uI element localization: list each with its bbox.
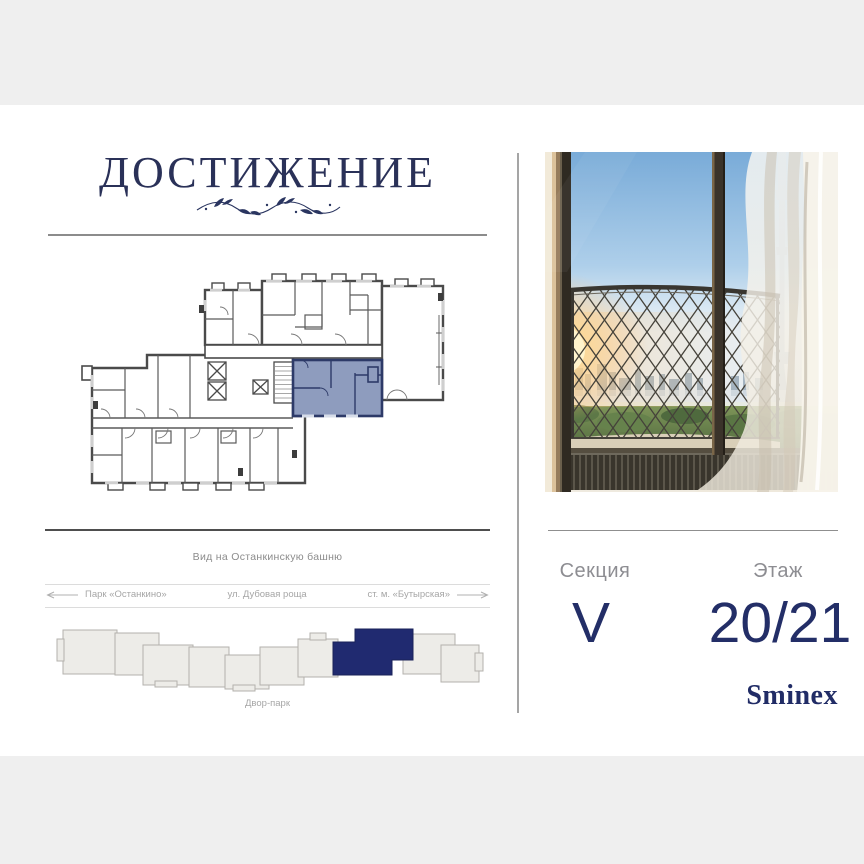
street-right-group: ст. м. «Бутырская» (368, 589, 491, 600)
center-mullion (712, 152, 725, 455)
floor-label: Этаж (718, 560, 838, 583)
flourish-ornament-icon (192, 196, 344, 220)
divider-street-top (45, 584, 490, 585)
divider-under-logo (48, 234, 487, 236)
site-plan-highlight (333, 629, 413, 675)
listing-card: ДОСТИЖЕНИЕ (0, 0, 864, 864)
street-label-center: ул. Дубовая роща (227, 589, 306, 600)
arrow-right-icon (456, 591, 490, 599)
brand-logo: ДОСТИЖЕНИЕ (45, 147, 490, 198)
floor-plan-highlighted-unit (293, 360, 382, 416)
floor-value: 20/21 (695, 594, 864, 654)
sminex-logo: Sminex (690, 680, 838, 712)
arrow-left-icon (45, 591, 79, 599)
view-caption: Вид на Останкинскую башню (45, 551, 490, 563)
site-plan-blocks (57, 630, 483, 691)
divider-street-bottom (45, 607, 490, 608)
street-row: Парк «Останкино» ул. Дубовая роща ст. м.… (45, 589, 490, 600)
floor-plan (50, 255, 490, 525)
street-label-park: Парк «Останкино» (85, 589, 167, 600)
divider-above-caption (45, 529, 490, 531)
divider-details (548, 530, 838, 531)
window-photo (545, 152, 838, 492)
courtyard-label: Двор-парк (45, 698, 490, 709)
street-label-metro: ст. м. «Бутырская» (368, 589, 451, 600)
section-label: Секция (535, 560, 655, 583)
site-plan (55, 617, 485, 693)
street-left-group: Парк «Останкино» (45, 589, 167, 600)
section-value: V (506, 594, 676, 654)
